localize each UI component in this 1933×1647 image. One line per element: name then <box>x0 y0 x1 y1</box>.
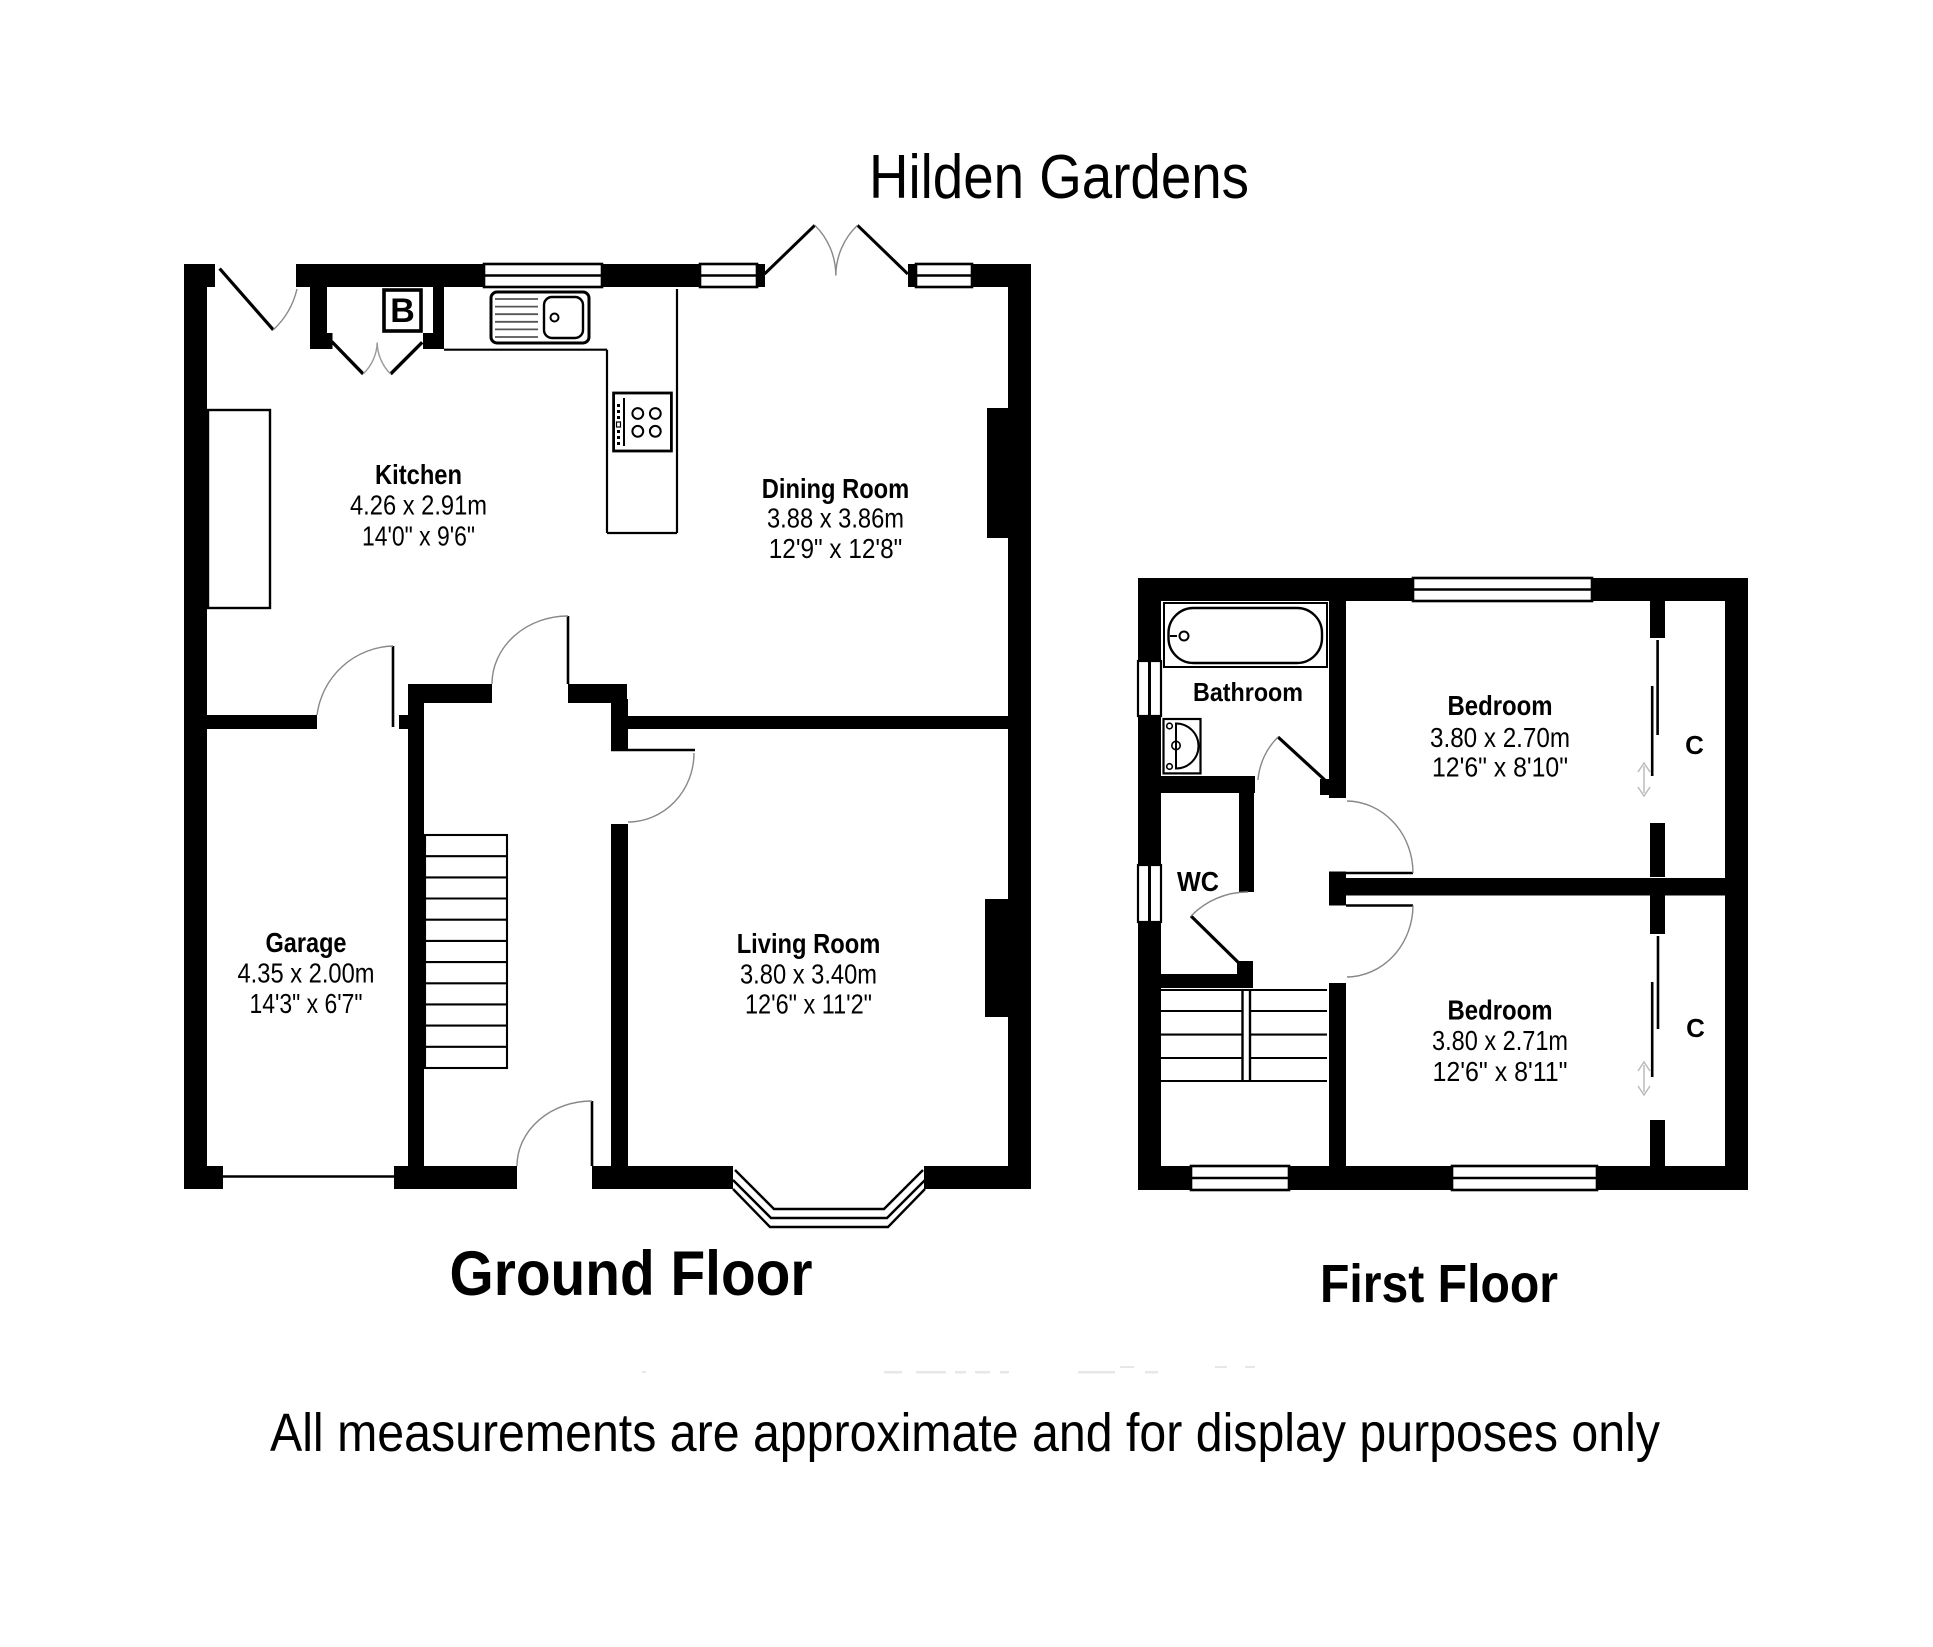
svg-text:First Floor: First Floor <box>1320 1254 1558 1314</box>
svg-text:4.26 x 2.91m: 4.26 x 2.91m <box>350 490 487 521</box>
svg-text:B: B <box>390 292 415 330</box>
svg-text:3.80 x 3.40m: 3.80 x 3.40m <box>740 958 877 989</box>
svg-text:4.35 x 2.00m: 4.35 x 2.00m <box>238 958 375 989</box>
svg-text:All measurements are approxima: All measurements are approximate and for… <box>270 1403 1660 1463</box>
svg-text:C: C <box>1686 1013 1705 1043</box>
svg-text:12'9" x 12'8": 12'9" x 12'8" <box>769 533 903 564</box>
svg-text:Hilden Gardens: Hilden Gardens <box>869 143 1249 212</box>
svg-text:3.80 x 2.70m: 3.80 x 2.70m <box>1430 722 1570 753</box>
svg-text:C: C <box>1685 730 1704 760</box>
svg-text:14'0" x 9'6": 14'0" x 9'6" <box>362 520 475 551</box>
svg-text:3.80 x 2.71m: 3.80 x 2.71m <box>1432 1025 1568 1056</box>
svg-text:Living Room: Living Room <box>737 928 881 959</box>
svg-text:14'3" x 6'7": 14'3" x 6'7" <box>250 988 363 1019</box>
svg-text:12'6" x 8'10": 12'6" x 8'10" <box>1432 751 1568 782</box>
svg-text:Ground Floor: Ground Floor <box>450 1239 813 1309</box>
svg-text:WC: WC <box>1177 866 1219 897</box>
svg-text:Dining Room: Dining Room <box>762 473 910 504</box>
svg-text:12'6" x 8'11": 12'6" x 8'11" <box>1433 1056 1568 1087</box>
svg-text:Garage: Garage <box>266 927 347 958</box>
svg-text:3.88 x 3.86m: 3.88 x 3.86m <box>767 503 904 534</box>
svg-text:Bathroom: Bathroom <box>1193 677 1303 707</box>
svg-text:12'6" x 11'2": 12'6" x 11'2" <box>745 988 872 1019</box>
svg-text:Kitchen: Kitchen <box>375 459 462 490</box>
svg-text:Bedroom: Bedroom <box>1448 995 1553 1026</box>
svg-text:Bedroom: Bedroom <box>1448 690 1553 721</box>
